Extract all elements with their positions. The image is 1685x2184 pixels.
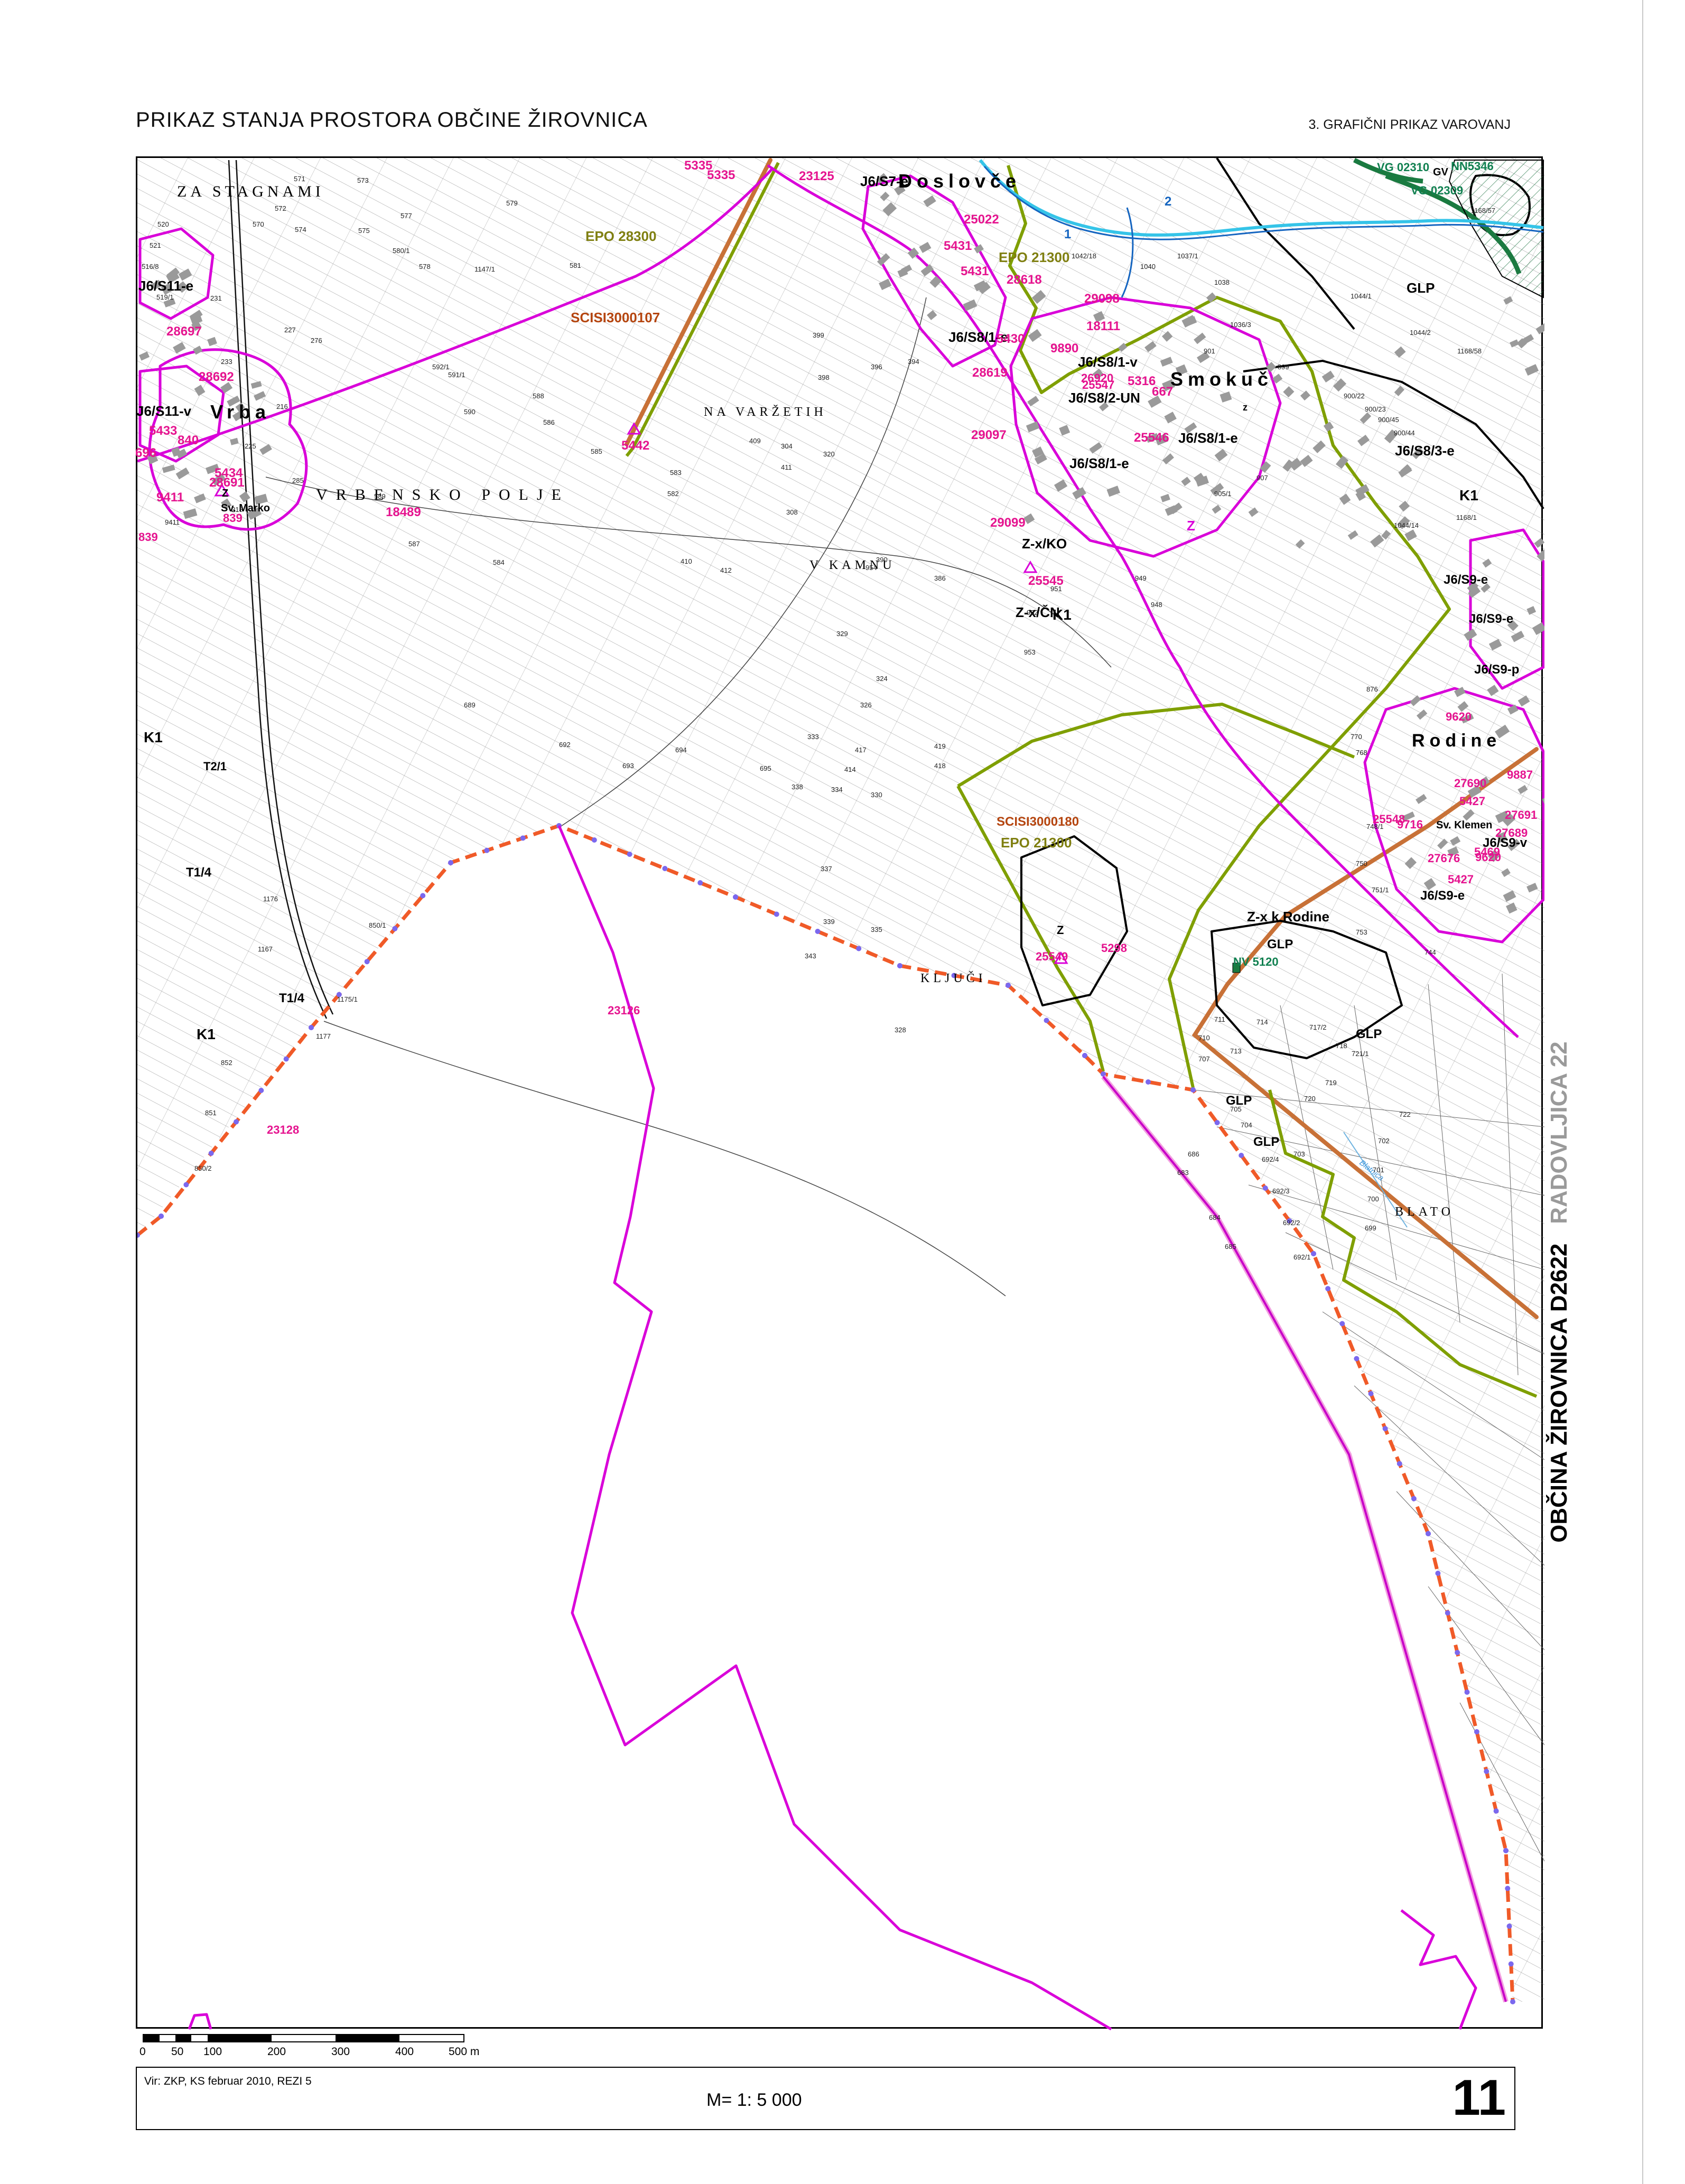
boundary-dot [1411, 1496, 1417, 1501]
boundary-dot [1325, 1286, 1330, 1291]
boundary-dot [1263, 1186, 1268, 1191]
boundary-dot [420, 893, 425, 898]
boundary-dot [733, 894, 738, 900]
scale-segment [336, 2035, 399, 2041]
boundary-dot [774, 912, 779, 917]
boundary-dot [1044, 1018, 1049, 1023]
boundary-dot [183, 1182, 189, 1188]
page-edge-line [1642, 0, 1643, 2184]
map-source-note: Vir: ZKP, KS februar 2010, REZI 5 [144, 2075, 312, 2088]
map-frame [136, 156, 1543, 2029]
boundary-dot [392, 926, 397, 931]
boundary-dot [337, 992, 342, 997]
side-municipality: OBČINA ŽIROVNICA D2622 [1546, 1244, 1572, 1543]
scale-tick-label: 50 [171, 2046, 183, 2058]
boundary-dot [1006, 983, 1011, 988]
boundary-dot [856, 946, 861, 951]
boundary-dot [1494, 1808, 1499, 1814]
boundary-dot [1082, 1053, 1087, 1058]
side-sheet-label: OBČINA ŽIROVNICA D2622 RADOVLJICA 22 [1546, 676, 1572, 1543]
boundary-dot [1474, 1729, 1479, 1734]
scale-tick-label: 200 [267, 2046, 286, 2058]
boundary-dot [1510, 1999, 1515, 2004]
nv-marker [1233, 963, 1240, 973]
boundary-dot [1509, 1962, 1514, 1967]
boundary-dot [1311, 1251, 1316, 1256]
boundary-dot [484, 848, 489, 853]
scale-tick-label: 100 [203, 2046, 222, 2058]
boundary-dot [1287, 1218, 1292, 1224]
boundary-dot [1383, 1426, 1388, 1431]
boundary-dot [1369, 1391, 1374, 1396]
boundary-dot [662, 866, 667, 871]
boundary-dot [897, 963, 902, 968]
scale-segment [399, 2035, 463, 2041]
page-title: PRIKAZ STANJA PROSTORA OBČINE ŽIROVNICA [136, 108, 648, 132]
scale-tick-label: 500 m [449, 2046, 479, 2058]
boundary-dot [627, 852, 632, 857]
parcel-mesh [137, 158, 1544, 2030]
boundary-dot [1465, 1690, 1470, 1695]
page: { "header": { "title": "PRIKAZ STANJA PR… [0, 0, 1685, 2184]
boundary-dot [697, 880, 703, 885]
boundary-dot [209, 1151, 214, 1156]
scale-tick-label: 400 [395, 2046, 414, 2058]
boundary-dot [815, 929, 821, 934]
boundary-dot [1505, 1886, 1510, 1891]
boundary-dot [1426, 1531, 1431, 1536]
scale-bar [143, 2034, 464, 2042]
boundary-dot [1354, 1356, 1359, 1361]
boundary-dot [952, 973, 957, 978]
scale-segment [208, 2035, 272, 2041]
map-scale-text: M= 1: 5 000 [706, 2090, 802, 2111]
boundary-dot [159, 1214, 164, 1219]
sheet-subtitle: 3. GRAFIČNI PRIKAZ VAROVANJ [1309, 117, 1511, 133]
scale-segment [144, 2035, 160, 2041]
boundary-dot [1484, 1769, 1489, 1774]
page-number: 11 [1453, 2069, 1506, 2127]
boundary-dot [1215, 1120, 1220, 1125]
boundary-dot [1503, 1848, 1509, 1853]
boundary-dot [520, 835, 526, 841]
boundary-dot [1445, 1610, 1450, 1616]
boundary-dot [284, 1057, 289, 1062]
side-sheet: RADOVLJICA 22 [1546, 1041, 1572, 1224]
boundary-dot [1146, 1079, 1151, 1085]
boundary-dot [1455, 1650, 1460, 1655]
map-canvas[interactable] [137, 158, 1544, 2030]
scale-tick-label: 0 [139, 2046, 146, 2058]
boundary-dot [365, 959, 370, 964]
boundary-dot [309, 1025, 314, 1030]
scale-segment [272, 2035, 336, 2041]
scale-segment [175, 2035, 191, 2041]
boundary-dot [1435, 1571, 1440, 1576]
scale-tick-label: 300 [331, 2046, 350, 2058]
footer-bar: Vir: ZKP, KS februar 2010, REZI 5 M= 1: … [136, 2067, 1515, 2130]
boundary-dot [1507, 1924, 1512, 1929]
boundary-dot [1339, 1321, 1345, 1327]
boundary-dot [234, 1119, 239, 1125]
boundary-dot [592, 837, 597, 843]
boundary-dot [1239, 1153, 1244, 1158]
scale-segment [160, 2035, 175, 2041]
boundary-dot [1190, 1087, 1196, 1093]
boundary-dot [258, 1088, 264, 1093]
scale-segment [191, 2035, 208, 2041]
boundary-dot [1397, 1461, 1402, 1467]
boundary-dot [448, 860, 453, 865]
